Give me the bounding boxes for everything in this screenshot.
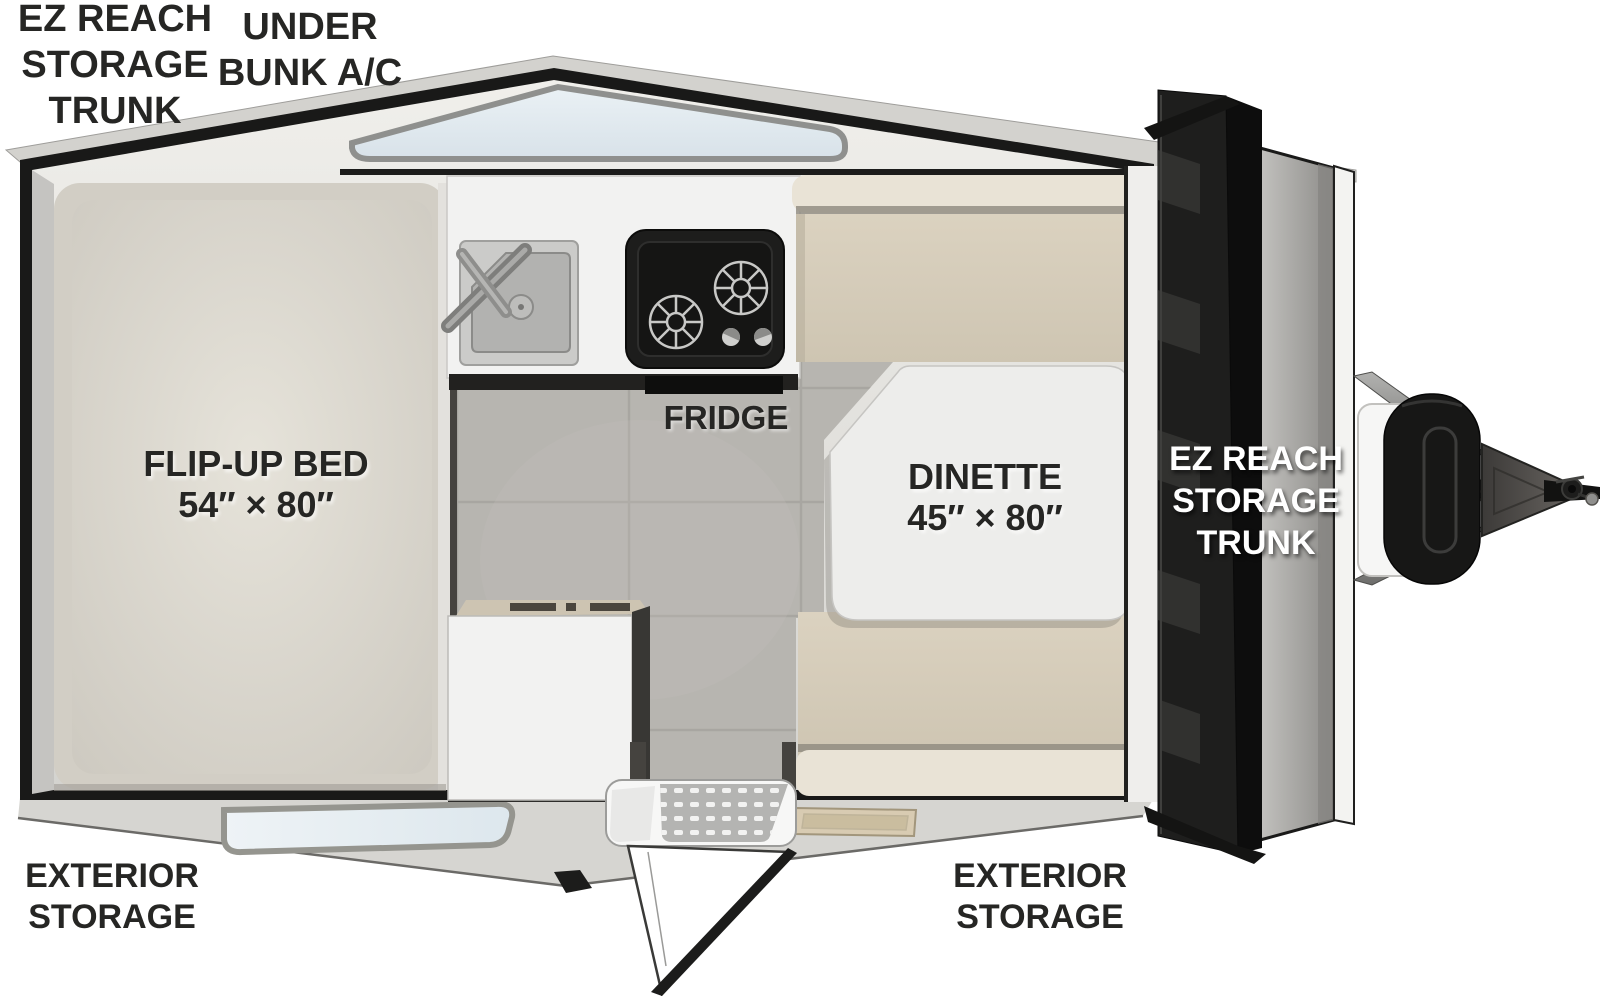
trailer-tongue	[1354, 372, 1600, 585]
front-wall-strip	[1124, 166, 1158, 802]
entry-step	[606, 780, 796, 846]
stove-icon	[626, 230, 784, 368]
rear-window	[224, 804, 512, 852]
dinette-seat-bottom	[796, 612, 1140, 796]
label-dinette: DINETTE 45″ × 80″	[907, 456, 1063, 538]
hitch-coupler	[1544, 477, 1600, 505]
label-under-bunk-ac: UNDER BUNK A/C	[218, 4, 402, 96]
storage-cabinet	[448, 600, 650, 802]
label-rear-storage-trunk: EZ REACH STORAGE TRUNK	[18, 0, 212, 134]
entry-door	[628, 846, 797, 996]
label-exterior-storage-left: EXTERIOR STORAGE	[25, 856, 199, 938]
dinette-seat-top	[792, 175, 1144, 362]
floorplan-diagram: EZ REACH STORAGE TRUNK UNDER BUNK A/C FL…	[0, 0, 1600, 996]
label-front-storage-trunk: EZ REACH STORAGE TRUNK	[1169, 438, 1343, 564]
fridge-under-counter	[645, 376, 783, 394]
sink-icon	[448, 241, 578, 365]
left-wall-band	[32, 170, 54, 794]
label-flip-up-bed: FLIP-UP BED 54″ × 80″	[143, 443, 368, 525]
label-exterior-storage-center: EXTERIOR STORAGE	[953, 856, 1127, 938]
door-mat	[794, 808, 916, 836]
label-fridge: FRIDGE	[664, 399, 789, 437]
propane-tank	[1384, 394, 1480, 584]
